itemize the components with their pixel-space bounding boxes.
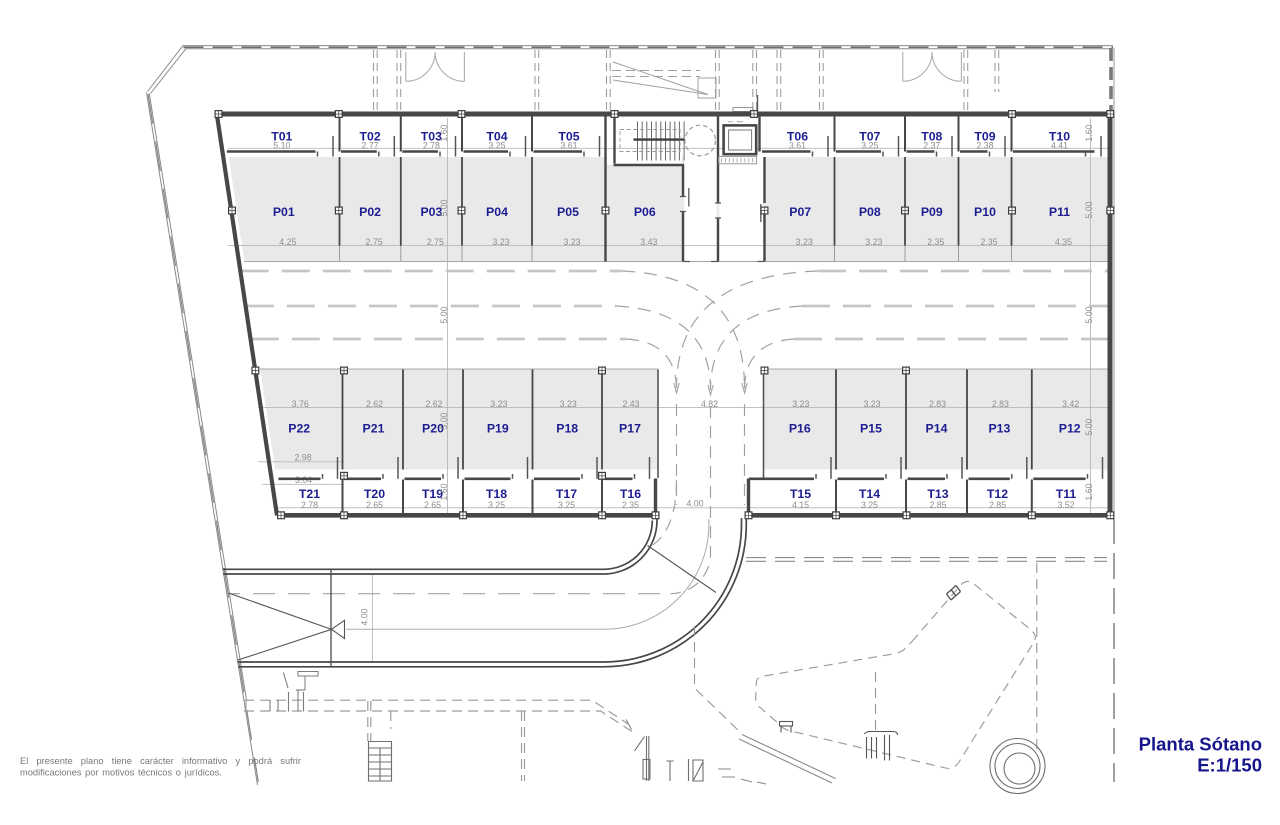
svg-text:5.00: 5.00 (1084, 418, 1094, 435)
svg-text:2.65: 2.65 (424, 500, 441, 510)
svg-text:3.23: 3.23 (490, 399, 507, 409)
svg-text:P04: P04 (486, 205, 508, 219)
svg-text:3.25: 3.25 (488, 141, 505, 151)
svg-text:2.78: 2.78 (423, 141, 440, 151)
svg-text:1.60: 1.60 (439, 483, 449, 500)
svg-text:T20: T20 (364, 487, 385, 501)
svg-text:P08: P08 (859, 205, 881, 219)
svg-text:3.23: 3.23 (560, 399, 577, 409)
svg-text:3.42: 3.42 (1062, 399, 1079, 409)
svg-text:2.83: 2.83 (929, 399, 946, 409)
svg-text:2.35: 2.35 (622, 500, 639, 510)
svg-text:2.98: 2.98 (294, 453, 311, 463)
svg-text:modificaciones por motivos téc: modificaciones por motivos técnicos o ju… (20, 767, 222, 777)
svg-text:El presente plano tiene caráct: El presente plano tiene carácter informa… (20, 756, 301, 766)
svg-text:P17: P17 (619, 421, 641, 435)
svg-text:5.00: 5.00 (1084, 201, 1094, 218)
svg-text:1.60: 1.60 (1084, 124, 1094, 141)
svg-text:5.00: 5.00 (1084, 306, 1094, 323)
svg-text:T13: T13 (927, 487, 948, 501)
svg-text:3.61: 3.61 (560, 141, 577, 151)
svg-text:4.00: 4.00 (686, 499, 703, 509)
svg-text:E:1/150: E:1/150 (1197, 755, 1262, 776)
svg-text:3.25: 3.25 (861, 141, 878, 151)
svg-text:2.35: 2.35 (980, 237, 997, 247)
svg-text:2.37: 2.37 (923, 141, 940, 151)
svg-text:3.25: 3.25 (558, 500, 575, 510)
svg-text:1.60: 1.60 (1084, 483, 1094, 500)
svg-text:3.23: 3.23 (865, 237, 882, 247)
svg-text:T11: T11 (1056, 487, 1077, 501)
svg-text:2.75: 2.75 (427, 237, 444, 247)
svg-text:P09: P09 (921, 205, 943, 219)
svg-text:3.04: 3.04 (295, 475, 312, 485)
svg-text:1.60: 1.60 (439, 124, 449, 141)
svg-text:2.65: 2.65 (366, 500, 383, 510)
svg-text:5.00: 5.00 (439, 199, 449, 216)
svg-text:2.77: 2.77 (362, 141, 379, 151)
svg-text:P02: P02 (359, 205, 381, 219)
svg-text:P05: P05 (557, 205, 579, 219)
svg-text:P10: P10 (974, 205, 996, 219)
svg-text:T14: T14 (859, 487, 880, 501)
svg-text:3.25: 3.25 (488, 500, 505, 510)
svg-text:4.00: 4.00 (359, 608, 369, 625)
svg-text:5.10: 5.10 (273, 141, 290, 151)
svg-text:T18: T18 (486, 487, 507, 501)
svg-text:2.78: 2.78 (301, 500, 318, 510)
svg-text:2.62: 2.62 (425, 399, 442, 409)
svg-text:4.41: 4.41 (1051, 141, 1068, 151)
svg-text:P14: P14 (926, 421, 948, 435)
svg-text:T16: T16 (620, 487, 641, 501)
svg-text:Planta Sótano: Planta Sótano (1139, 734, 1262, 755)
svg-text:4.25: 4.25 (279, 237, 296, 247)
svg-text:3.23: 3.23 (792, 399, 809, 409)
svg-text:P19: P19 (487, 421, 509, 435)
svg-text:P16: P16 (789, 421, 811, 435)
svg-text:2.83: 2.83 (992, 399, 1009, 409)
svg-text:2.85: 2.85 (929, 500, 946, 510)
svg-text:2.85: 2.85 (989, 500, 1006, 510)
svg-text:2.75: 2.75 (366, 237, 383, 247)
svg-text:P12: P12 (1059, 421, 1081, 435)
svg-text:3.23: 3.23 (863, 399, 880, 409)
svg-text:3.43: 3.43 (640, 237, 657, 247)
svg-text:T21: T21 (299, 487, 320, 501)
svg-text:P11: P11 (1049, 205, 1070, 219)
svg-text:4.35: 4.35 (1055, 237, 1072, 247)
svg-text:T15: T15 (790, 487, 811, 501)
svg-text:P06: P06 (634, 205, 656, 219)
svg-text:5.00: 5.00 (439, 306, 449, 323)
svg-text:3.61: 3.61 (789, 141, 806, 151)
svg-text:P18: P18 (556, 421, 578, 435)
svg-text:T12: T12 (987, 487, 1008, 501)
svg-text:3.25: 3.25 (861, 500, 878, 510)
svg-text:5.00: 5.00 (439, 412, 449, 429)
svg-text:P21: P21 (363, 421, 385, 435)
svg-text:2.35: 2.35 (927, 237, 944, 247)
svg-text:3.23: 3.23 (492, 237, 509, 247)
svg-text:3.52: 3.52 (1057, 500, 1074, 510)
svg-text:P01: P01 (273, 205, 295, 219)
svg-text:T17: T17 (556, 487, 577, 501)
svg-text:3.23: 3.23 (563, 237, 580, 247)
svg-text:2.38: 2.38 (976, 141, 993, 151)
svg-text:3.23: 3.23 (796, 237, 813, 247)
svg-text:P13: P13 (988, 421, 1010, 435)
svg-text:P15: P15 (860, 421, 882, 435)
svg-text:4.82: 4.82 (701, 399, 718, 409)
svg-text:P22: P22 (288, 421, 310, 435)
svg-text:2.43: 2.43 (622, 399, 639, 409)
svg-text:3.76: 3.76 (292, 399, 309, 409)
svg-text:P07: P07 (789, 205, 811, 219)
svg-text:4.15: 4.15 (792, 500, 809, 510)
svg-text:2.62: 2.62 (366, 399, 383, 409)
